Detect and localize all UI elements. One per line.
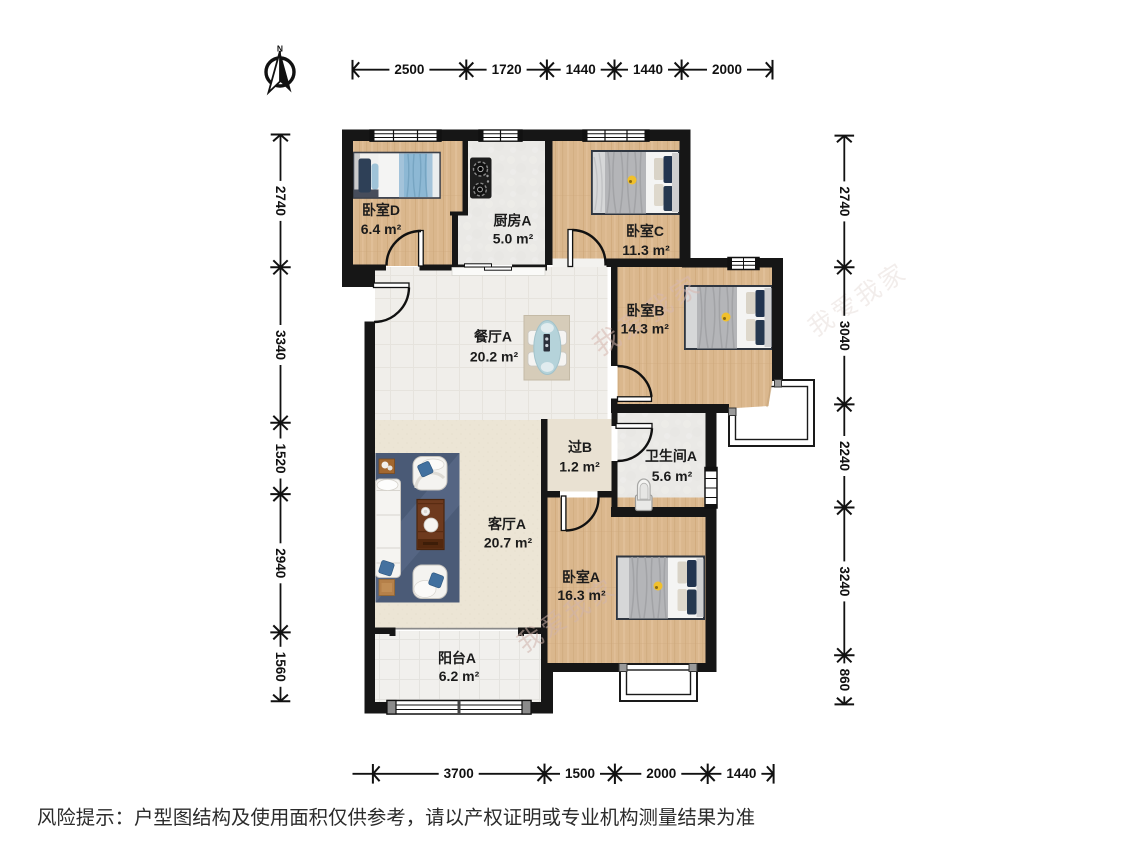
svg-text:卧室A: 卧室A (562, 569, 600, 585)
svg-text:1520: 1520 (273, 443, 288, 473)
svg-text:6.4 m²: 6.4 m² (361, 221, 402, 237)
svg-text:厨房A: 厨房A (493, 213, 531, 229)
svg-text:1720: 1720 (492, 62, 522, 77)
svg-text:卧室D: 卧室D (362, 202, 400, 218)
svg-text:2240: 2240 (837, 441, 852, 471)
svg-text:餐厅A: 餐厅A (473, 329, 512, 345)
svg-text:16.3 m²: 16.3 m² (557, 587, 606, 603)
svg-text:过B: 过B (568, 439, 592, 455)
svg-text:3240: 3240 (837, 566, 852, 596)
svg-text:2500: 2500 (394, 62, 424, 77)
svg-text:2740: 2740 (837, 186, 852, 216)
svg-text:1440: 1440 (633, 62, 663, 77)
svg-text:5.0 m²: 5.0 m² (493, 231, 534, 247)
svg-text:2000: 2000 (712, 62, 742, 77)
svg-text:卧室C: 卧室C (626, 223, 664, 239)
svg-text:3700: 3700 (444, 766, 474, 781)
svg-text:3340: 3340 (273, 330, 288, 360)
svg-text:2000: 2000 (646, 766, 676, 781)
svg-text:5.6 m²: 5.6 m² (652, 468, 693, 484)
svg-text:风险提示：户型图结构及使用面积仅供参考，请以产权证明或专业机: 风险提示：户型图结构及使用面积仅供参考，请以产权证明或专业机构测量结果为准 (37, 807, 755, 829)
svg-text:1440: 1440 (726, 766, 756, 781)
svg-text:卧室B: 卧室B (626, 303, 664, 319)
svg-text:2740: 2740 (273, 186, 288, 216)
svg-text:11.3 m²: 11.3 m² (622, 242, 670, 258)
svg-text:20.7 m²: 20.7 m² (484, 535, 533, 551)
svg-text:2940: 2940 (273, 548, 288, 578)
svg-text:1500: 1500 (565, 766, 595, 781)
svg-text:6.2 m²: 6.2 m² (439, 668, 480, 684)
svg-text:14.3 m²: 14.3 m² (621, 321, 670, 337)
svg-text:N: N (277, 44, 283, 54)
svg-text:860: 860 (837, 669, 852, 692)
svg-text:1.2 m²: 1.2 m² (559, 459, 600, 475)
svg-text:20.2 m²: 20.2 m² (470, 349, 519, 365)
svg-text:阳台A: 阳台A (438, 650, 476, 666)
svg-text:3040: 3040 (837, 321, 852, 351)
svg-text:卫生间A: 卫生间A (645, 448, 697, 464)
svg-text:1560: 1560 (273, 652, 288, 682)
svg-text:1440: 1440 (566, 62, 596, 77)
svg-text:客厅A: 客厅A (487, 516, 526, 532)
